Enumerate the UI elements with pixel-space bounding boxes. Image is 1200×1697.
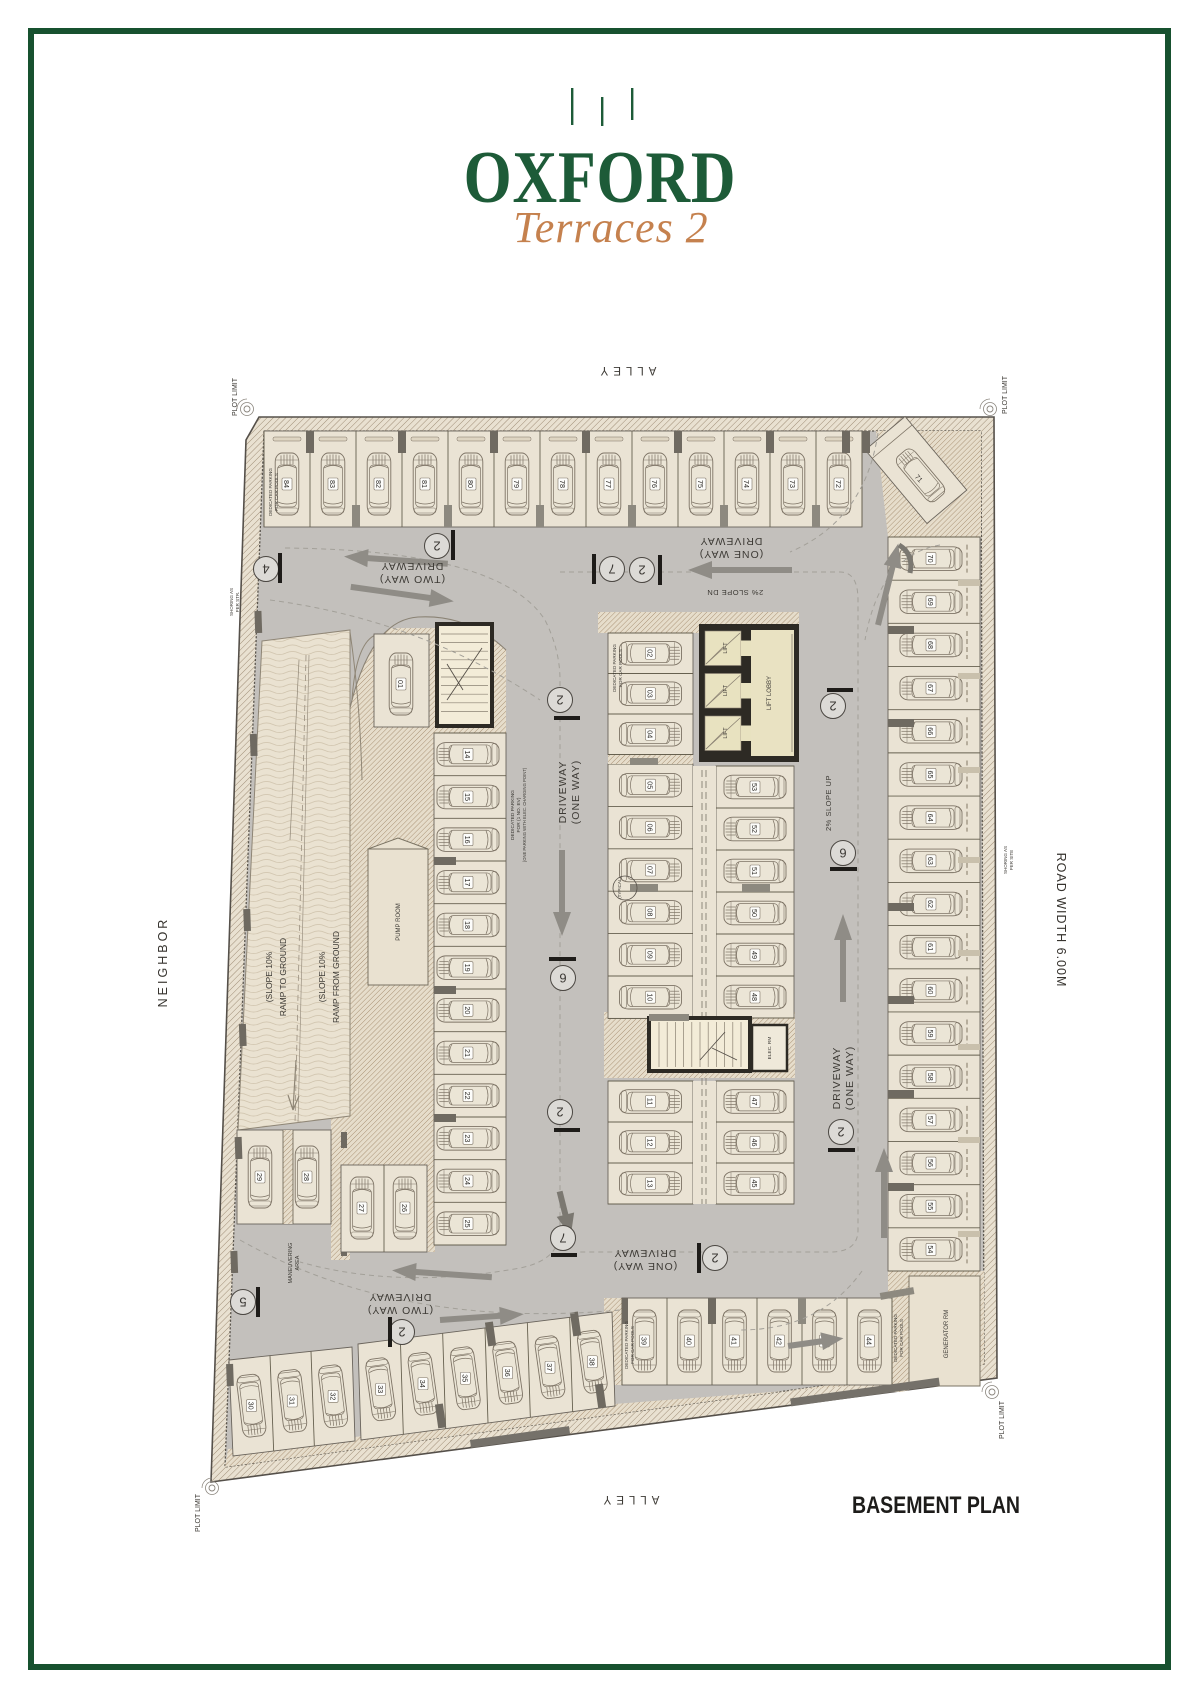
svg-text:SHORING AS: SHORING AS bbox=[229, 588, 234, 616]
svg-text:2: 2 bbox=[433, 539, 440, 554]
svg-text:01: 01 bbox=[396, 680, 405, 688]
svg-text:82: 82 bbox=[374, 480, 383, 488]
svg-text:AREA: AREA bbox=[295, 1255, 301, 1270]
svg-text:2: 2 bbox=[837, 1125, 844, 1140]
svg-text:80: 80 bbox=[466, 480, 475, 488]
svg-text:(ONE WAY): (ONE WAY) bbox=[613, 1260, 677, 1272]
svg-text:RAMP FROM GROUND: RAMP FROM GROUND bbox=[331, 931, 341, 1023]
svg-text:RAMP TO GROUND: RAMP TO GROUND bbox=[278, 938, 288, 1016]
svg-text:DRIVEWAY: DRIVEWAY bbox=[369, 1291, 432, 1303]
svg-text:(SLOPE 10%: (SLOPE 10% bbox=[264, 951, 274, 1002]
svg-text:(ONE PARKING WITH ELEC. CHARGI: (ONE PARKING WITH ELEC. CHARGING POINT) bbox=[522, 767, 527, 862]
svg-text:DRIVEWAY: DRIVEWAY bbox=[557, 761, 569, 824]
svg-text:59: 59 bbox=[926, 1030, 935, 1038]
svg-text:04: 04 bbox=[646, 730, 655, 738]
svg-text:6: 6 bbox=[559, 971, 566, 986]
svg-text:DEDICATED PARKING: DEDICATED PARKING bbox=[624, 1321, 629, 1369]
svg-text:83: 83 bbox=[328, 480, 337, 488]
svg-text:32: 32 bbox=[328, 1392, 337, 1400]
svg-text:68: 68 bbox=[926, 641, 935, 649]
svg-text:(ONE WAY): (ONE WAY) bbox=[699, 548, 763, 560]
svg-text:15: 15 bbox=[463, 793, 472, 801]
svg-text:PUMP ROOM: PUMP ROOM bbox=[396, 903, 402, 941]
svg-text:20: 20 bbox=[463, 1006, 472, 1014]
svg-text:31: 31 bbox=[287, 1397, 296, 1405]
svg-text:29: 29 bbox=[255, 1173, 264, 1181]
svg-text:24: 24 bbox=[463, 1177, 472, 1185]
svg-text:LIFT: LIFT bbox=[723, 642, 729, 654]
svg-text:09: 09 bbox=[646, 951, 655, 959]
svg-text:81: 81 bbox=[420, 480, 429, 488]
svg-text:40: 40 bbox=[685, 1337, 694, 1345]
svg-text:61: 61 bbox=[926, 943, 935, 951]
svg-text:2: 2 bbox=[398, 1325, 405, 1340]
svg-text:27: 27 bbox=[357, 1204, 366, 1212]
svg-text:06: 06 bbox=[646, 824, 655, 832]
svg-text:18: 18 bbox=[463, 921, 472, 929]
svg-text:70: 70 bbox=[926, 555, 935, 563]
svg-text:2: 2 bbox=[556, 1105, 563, 1120]
svg-text:62: 62 bbox=[926, 900, 935, 908]
svg-text:FOR CAR POOLS: FOR CAR POOLS bbox=[274, 473, 279, 511]
svg-text:76: 76 bbox=[650, 480, 659, 488]
svg-text:60: 60 bbox=[926, 986, 935, 994]
svg-text:79: 79 bbox=[512, 480, 521, 488]
svg-text:SHORING AS: SHORING AS bbox=[1003, 846, 1008, 874]
svg-text:PLOT LIMIT: PLOT LIMIT bbox=[232, 377, 239, 416]
svg-text:50: 50 bbox=[750, 909, 759, 917]
svg-text:2% SLOPE DN: 2% SLOPE DN bbox=[707, 588, 763, 597]
svg-text:DRIVEWAY: DRIVEWAY bbox=[614, 1247, 677, 1259]
svg-text:(TWO WAY): (TWO WAY) bbox=[379, 573, 445, 585]
svg-text:ELEC. RM: ELEC. RM bbox=[767, 1037, 773, 1060]
svg-text:12: 12 bbox=[646, 1139, 655, 1147]
svg-text:44: 44 bbox=[865, 1337, 874, 1345]
svg-text:41: 41 bbox=[730, 1337, 739, 1345]
svg-text:46: 46 bbox=[750, 1139, 759, 1147]
svg-text:LIFT: LIFT bbox=[723, 684, 729, 696]
svg-text:05: 05 bbox=[646, 781, 655, 789]
svg-text:34: 34 bbox=[418, 1380, 427, 1388]
svg-text:30: 30 bbox=[247, 1402, 256, 1410]
svg-text:16: 16 bbox=[463, 836, 472, 844]
svg-text:(ONE WAY): (ONE WAY) bbox=[570, 760, 582, 824]
svg-text:72: 72 bbox=[834, 480, 843, 488]
svg-text:36: 36 bbox=[503, 1369, 512, 1377]
svg-text:2% SLOPE UP: 2% SLOPE UP bbox=[824, 775, 833, 831]
svg-text:28: 28 bbox=[302, 1173, 311, 1181]
svg-text:63: 63 bbox=[926, 857, 935, 865]
svg-text:5: 5 bbox=[239, 1295, 246, 1310]
svg-text:21: 21 bbox=[463, 1049, 472, 1057]
svg-text:78: 78 bbox=[558, 480, 567, 488]
svg-text:DEDICATED PARKING: DEDICATED PARKING bbox=[510, 790, 516, 840]
svg-text:22: 22 bbox=[463, 1092, 472, 1100]
svg-text:69: 69 bbox=[926, 598, 935, 606]
svg-text:37: 37 bbox=[545, 1363, 554, 1371]
svg-text:25: 25 bbox=[463, 1220, 472, 1228]
svg-text:10: 10 bbox=[646, 993, 655, 1001]
svg-text:52: 52 bbox=[750, 825, 759, 833]
svg-text:38: 38 bbox=[588, 1358, 597, 1366]
svg-text:84: 84 bbox=[282, 480, 291, 488]
svg-text:(TYPICAL): (TYPICAL) bbox=[617, 877, 622, 899]
svg-text:DEDICATED PARKING: DEDICATED PARKING bbox=[268, 468, 273, 516]
svg-text:FOR CAR POOLS: FOR CAR POOLS bbox=[899, 1319, 904, 1357]
svg-text:58: 58 bbox=[926, 1073, 935, 1081]
svg-text:53: 53 bbox=[750, 783, 759, 791]
svg-text:DEDICATED PARKING: DEDICATED PARKING bbox=[612, 644, 617, 692]
svg-text:DRIVEWAY: DRIVEWAY bbox=[831, 1047, 843, 1110]
svg-text:6: 6 bbox=[839, 846, 846, 861]
svg-text:39: 39 bbox=[640, 1337, 649, 1345]
svg-text:FOR CAR POOLS: FOR CAR POOLS bbox=[618, 649, 623, 687]
svg-text:42: 42 bbox=[775, 1337, 784, 1345]
svg-text:LIFT: LIFT bbox=[723, 727, 729, 739]
svg-text:45: 45 bbox=[750, 1180, 759, 1188]
svg-text:65: 65 bbox=[926, 770, 935, 778]
svg-text:2: 2 bbox=[711, 1251, 718, 1266]
svg-text:PLOT LIMIT: PLOT LIMIT bbox=[999, 1400, 1006, 1439]
svg-text:13: 13 bbox=[646, 1180, 655, 1188]
svg-text:77: 77 bbox=[604, 480, 613, 488]
svg-text:2: 2 bbox=[638, 563, 645, 578]
svg-text:DRIVEWAY: DRIVEWAY bbox=[700, 535, 763, 547]
svg-text:26: 26 bbox=[400, 1204, 409, 1212]
svg-text:57: 57 bbox=[926, 1116, 935, 1124]
svg-text:03: 03 bbox=[646, 690, 655, 698]
svg-text:08: 08 bbox=[646, 908, 655, 916]
svg-text:48: 48 bbox=[750, 993, 759, 1001]
svg-text:(ONE WAY): (ONE WAY) bbox=[844, 1046, 856, 1110]
svg-text:MANEUVERING: MANEUVERING bbox=[288, 1243, 294, 1284]
svg-text:11: 11 bbox=[646, 1098, 655, 1105]
svg-text:PLOT LIMIT: PLOT LIMIT bbox=[195, 1493, 202, 1532]
svg-text:14: 14 bbox=[463, 750, 472, 758]
svg-text:2: 2 bbox=[556, 693, 563, 708]
svg-text:ALLEY: ALLEY bbox=[599, 1493, 660, 1505]
svg-text:33: 33 bbox=[376, 1385, 385, 1393]
svg-text:17: 17 bbox=[463, 878, 472, 886]
svg-text:55: 55 bbox=[926, 1202, 935, 1210]
svg-text:7: 7 bbox=[608, 562, 615, 577]
svg-text:67: 67 bbox=[926, 684, 935, 692]
svg-text:35: 35 bbox=[461, 1374, 470, 1382]
svg-text:02: 02 bbox=[646, 649, 655, 657]
svg-text:7: 7 bbox=[559, 1231, 566, 1246]
svg-text:ALLEY: ALLEY bbox=[596, 364, 657, 376]
svg-text:(TWO WAY): (TWO WAY) bbox=[367, 1304, 433, 1316]
svg-text:51: 51 bbox=[750, 867, 759, 875]
svg-text:54: 54 bbox=[926, 1245, 935, 1253]
svg-text:FOR CAR POOLS: FOR CAR POOLS bbox=[630, 1326, 635, 1364]
svg-text:DEDICATED PARKING: DEDICATED PARKING bbox=[893, 1314, 898, 1362]
svg-text:66: 66 bbox=[926, 727, 935, 735]
svg-text:PER SITE: PER SITE bbox=[1009, 850, 1014, 871]
svg-text:75: 75 bbox=[696, 480, 705, 488]
svg-text:PER STR.: PER STR. bbox=[235, 592, 240, 613]
svg-text:47: 47 bbox=[750, 1098, 759, 1106]
svg-text:DRIVEWAY: DRIVEWAY bbox=[381, 560, 444, 572]
svg-text:07: 07 bbox=[646, 866, 655, 874]
svg-text:ROAD WIDTH 6.00M: ROAD WIDTH 6.00M bbox=[1054, 853, 1068, 988]
svg-text:GENERATOR RM: GENERATOR RM bbox=[944, 1310, 950, 1358]
svg-text:49: 49 bbox=[750, 951, 759, 959]
svg-text:NEIGHBOR: NEIGHBOR bbox=[156, 917, 170, 1008]
svg-text:56: 56 bbox=[926, 1159, 935, 1167]
svg-text:19: 19 bbox=[463, 964, 472, 972]
svg-text:73: 73 bbox=[788, 480, 797, 488]
svg-text:(SLOPE 10%: (SLOPE 10% bbox=[317, 951, 327, 1002]
svg-text:LIFT LOBBY: LIFT LOBBY bbox=[767, 676, 773, 710]
svg-text:PLOT LIMIT: PLOT LIMIT bbox=[1002, 375, 1009, 414]
svg-text:BASEMENT PLAN: BASEMENT PLAN bbox=[852, 1492, 1020, 1519]
svg-text:74: 74 bbox=[742, 480, 751, 488]
svg-text:2: 2 bbox=[829, 699, 836, 714]
svg-text:4: 4 bbox=[262, 562, 269, 577]
svg-text:64: 64 bbox=[926, 814, 935, 822]
svg-text:23: 23 bbox=[463, 1134, 472, 1142]
